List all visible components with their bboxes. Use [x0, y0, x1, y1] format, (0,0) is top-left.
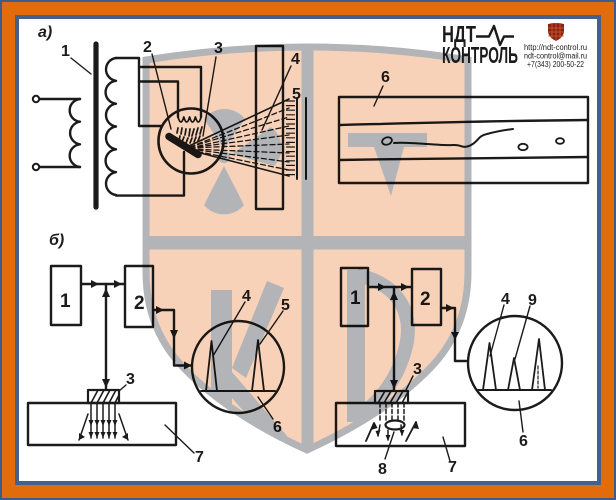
svg-text:КОНТРОЛЬ: КОНТРОЛЬ — [442, 42, 518, 68]
svg-text:а): а) — [38, 24, 52, 41]
svg-text:1: 1 — [60, 291, 71, 312]
svg-text:+7(343) 200-50-22: +7(343) 200-50-22 — [527, 60, 584, 69]
svg-text:6: 6 — [519, 433, 528, 450]
svg-text:8: 8 — [378, 461, 387, 478]
svg-text:4: 4 — [501, 291, 510, 308]
svg-text:б): б) — [49, 232, 64, 249]
svg-text:2: 2 — [143, 39, 152, 56]
svg-text:1: 1 — [61, 43, 70, 60]
svg-text:3: 3 — [126, 371, 135, 388]
svg-text:7: 7 — [448, 459, 457, 476]
svg-text:7: 7 — [195, 449, 204, 466]
svg-text:2: 2 — [134, 293, 145, 314]
